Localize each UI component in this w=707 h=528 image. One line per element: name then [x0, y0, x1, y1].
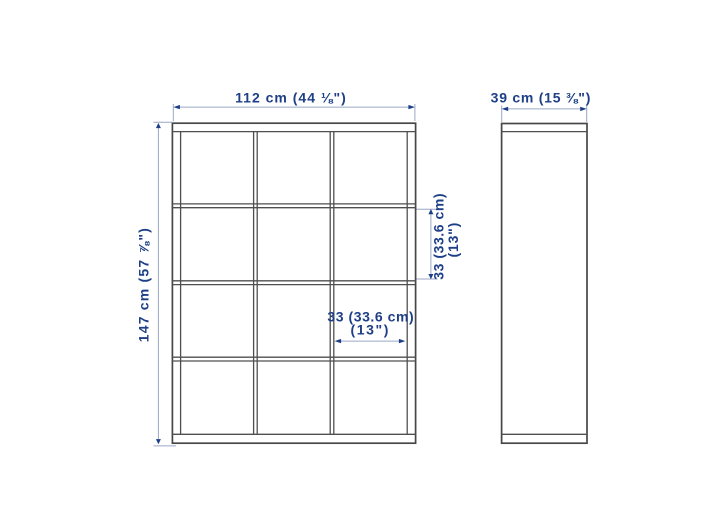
svg-text:(13"): (13") — [351, 322, 391, 338]
svg-text:112 cm (44 ⅛"): 112 cm (44 ⅛") — [235, 90, 347, 106]
svg-text:147 cm (57 ⅞"): 147 cm (57 ⅞") — [135, 227, 151, 342]
svg-text:39 cm (15 ⅜"): 39 cm (15 ⅜") — [491, 90, 591, 106]
svg-text:(13"): (13") — [445, 222, 461, 258]
